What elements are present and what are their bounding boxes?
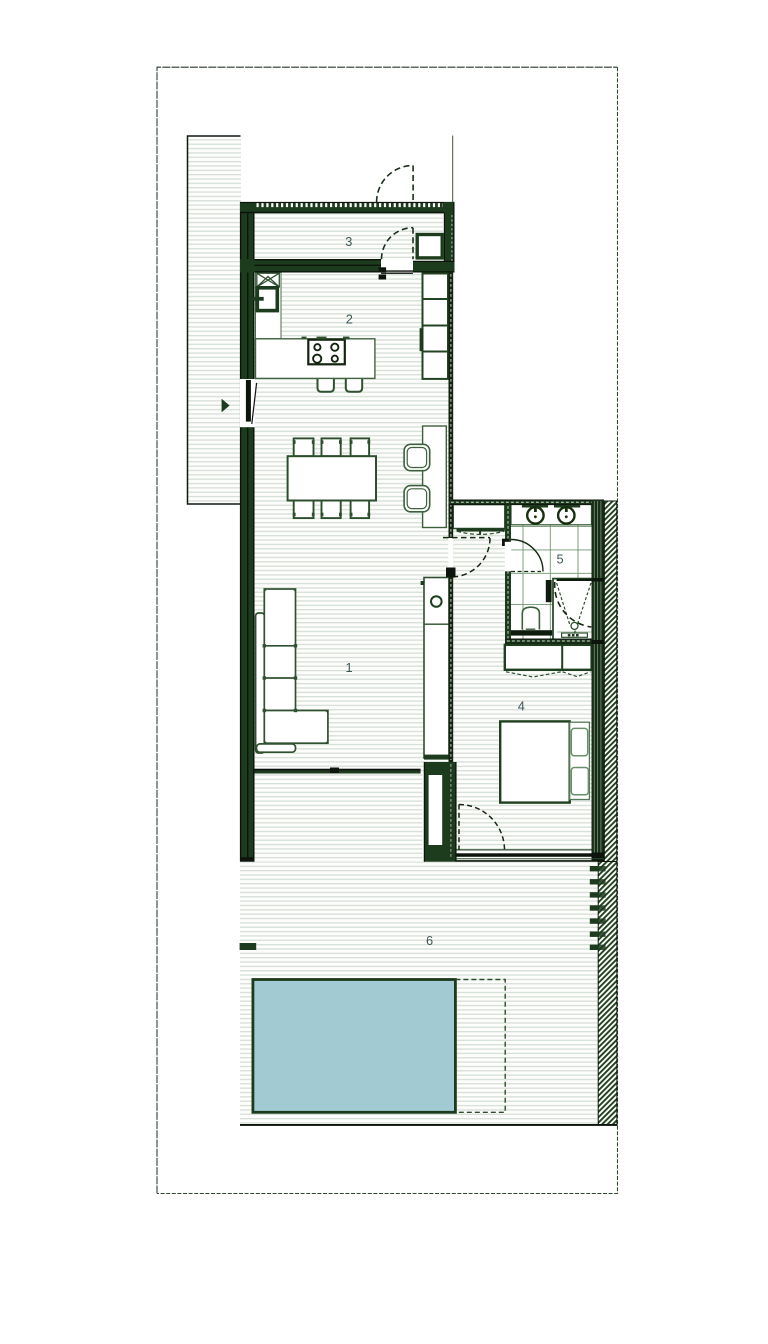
svg-text:4: 4 bbox=[518, 699, 525, 714]
svg-text:6: 6 bbox=[426, 933, 433, 948]
svg-text:3: 3 bbox=[345, 234, 352, 249]
svg-text:2: 2 bbox=[346, 312, 353, 327]
svg-text:5: 5 bbox=[556, 552, 563, 567]
svg-text:1: 1 bbox=[345, 660, 352, 675]
